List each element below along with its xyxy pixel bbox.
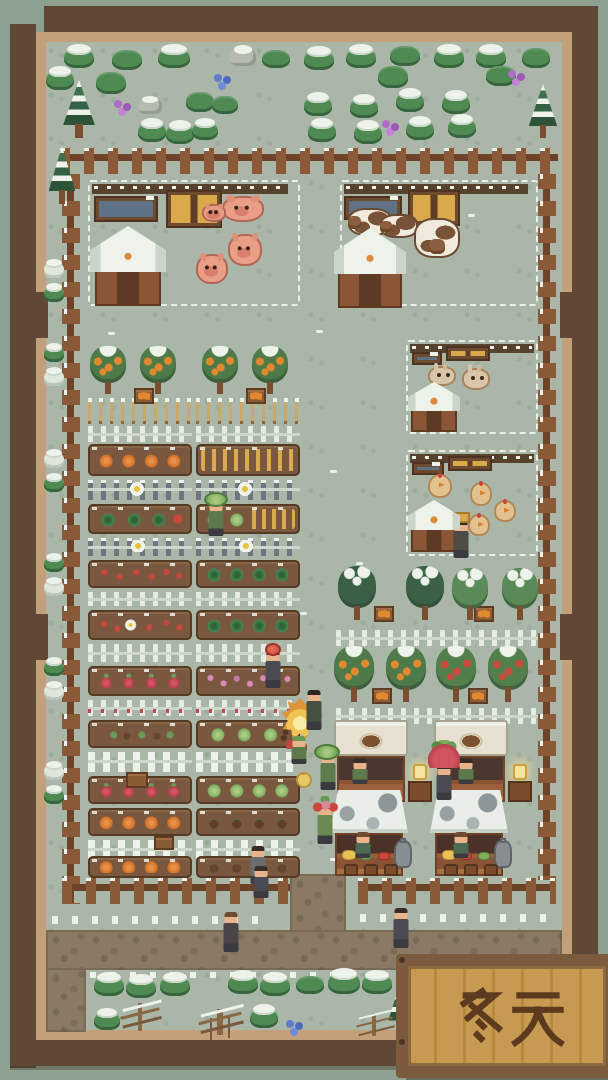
purpleflower [380, 118, 402, 134]
bush [158, 48, 190, 68]
snowdot [316, 330, 323, 333]
fooditem [478, 852, 490, 860]
scene-layer [0, 0, 608, 1080]
cow-barn[interactable] [334, 228, 406, 308]
bush [96, 72, 126, 94]
feedbox[interactable] [448, 456, 492, 471]
crate[interactable] [246, 388, 266, 404]
bush [250, 1008, 278, 1028]
chick[interactable] [296, 772, 312, 788]
bed[interactable] [88, 444, 192, 476]
bush [94, 976, 124, 996]
chicken[interactable] [468, 514, 490, 536]
tree-apple[interactable] [488, 646, 528, 702]
bush [44, 788, 64, 804]
crate[interactable] [154, 836, 174, 850]
tree-snow [452, 568, 488, 620]
snowdot [108, 332, 115, 335]
bush [44, 286, 64, 302]
trellis [88, 644, 192, 662]
cow[interactable] [414, 218, 460, 258]
carryitem [428, 740, 460, 768]
bush [522, 48, 550, 68]
stool [484, 864, 498, 876]
bush [354, 124, 382, 144]
bed[interactable] [88, 560, 192, 588]
bush [296, 976, 324, 994]
path-vertical [290, 874, 346, 934]
eggflower [128, 482, 146, 496]
bush [44, 684, 64, 700]
bush [406, 120, 434, 140]
tree-orange[interactable] [90, 346, 126, 394]
shopkeeper-1[interactable] [352, 758, 368, 784]
eggflower [130, 540, 146, 552]
carryitem [204, 492, 228, 507]
crate[interactable] [134, 388, 154, 404]
bush [126, 978, 156, 998]
shopkeeper-4[interactable] [452, 832, 470, 858]
rabbit[interactable] [428, 366, 456, 386]
deadbush [194, 1006, 246, 1038]
blueflower [284, 1018, 306, 1034]
bush [160, 976, 190, 996]
bush [44, 262, 64, 278]
bed[interactable] [196, 610, 300, 640]
bush [44, 764, 64, 780]
bush [448, 118, 476, 138]
snowdot [330, 470, 337, 473]
trellis [88, 592, 192, 606]
fence-left [62, 174, 80, 904]
carryitem [310, 796, 340, 814]
pig-barn[interactable] [90, 226, 166, 306]
fence-right [538, 174, 556, 880]
bush [192, 122, 218, 140]
tree-orange[interactable] [140, 346, 176, 394]
bed[interactable] [88, 610, 192, 640]
bush [228, 974, 258, 994]
tree-orange[interactable] [386, 646, 426, 702]
deadbush [116, 1000, 164, 1034]
stool [384, 864, 398, 876]
bush [94, 1012, 120, 1030]
eggflower [238, 540, 254, 552]
tree-orange[interactable] [202, 346, 238, 394]
bush [346, 48, 376, 68]
bed[interactable] [196, 776, 300, 804]
tree-orange[interactable] [252, 346, 288, 394]
pine [526, 84, 560, 138]
crate[interactable] [126, 772, 148, 788]
bush [44, 556, 64, 572]
bush [44, 476, 64, 492]
trellis [196, 752, 300, 772]
bush [212, 96, 238, 114]
bush [44, 346, 64, 362]
bush [44, 660, 64, 676]
bush [350, 98, 378, 118]
villager-path-1[interactable] [220, 912, 242, 952]
trellis [196, 592, 300, 606]
bush [434, 48, 464, 68]
crate[interactable] [374, 606, 394, 622]
bed[interactable] [196, 560, 300, 588]
pine [46, 146, 78, 204]
rabbit-coop[interactable] [408, 382, 460, 432]
bed[interactable] [196, 444, 300, 476]
pig[interactable] [202, 204, 226, 222]
chicken[interactable] [494, 500, 516, 522]
trough[interactable] [94, 196, 158, 222]
season-sign[interactable]: 冬天 [396, 954, 608, 1078]
shopkeeper-2[interactable] [458, 758, 474, 784]
bed[interactable] [196, 808, 300, 836]
bush [378, 66, 408, 88]
carryitem [314, 744, 340, 760]
trellis [88, 700, 192, 716]
chicken[interactable] [470, 482, 492, 506]
tree-orange[interactable] [334, 646, 374, 702]
bush [308, 122, 336, 142]
chicken[interactable] [428, 474, 452, 498]
purpleflower [112, 98, 136, 116]
path-left [46, 968, 86, 1032]
bush [328, 972, 360, 994]
bush [442, 94, 470, 114]
bed[interactable] [196, 666, 300, 696]
bush [166, 124, 194, 144]
shopkeeper-3[interactable] [354, 832, 372, 858]
bush [44, 580, 64, 596]
trellis [336, 630, 540, 646]
tree-snow [406, 566, 444, 620]
rabbit[interactable] [462, 368, 490, 390]
pine [60, 80, 98, 138]
bed[interactable] [88, 720, 192, 748]
bush [396, 92, 424, 112]
villager-kid[interactable] [290, 736, 308, 764]
snowdot [356, 562, 363, 565]
fooditem [378, 852, 390, 860]
pig[interactable] [196, 254, 228, 284]
bed[interactable] [88, 666, 192, 696]
purpleflower [506, 68, 528, 84]
bush [262, 50, 290, 68]
bed[interactable] [88, 808, 192, 836]
pig[interactable] [228, 234, 262, 266]
rock [138, 98, 162, 114]
deadbush [352, 1012, 396, 1038]
bush [112, 50, 142, 70]
pig[interactable] [222, 196, 264, 222]
stool [344, 864, 358, 876]
bush [44, 452, 64, 468]
bush [260, 976, 290, 996]
tree-apple[interactable] [436, 646, 476, 702]
tree-snow [338, 566, 376, 620]
snowline [360, 914, 550, 922]
villager-bonfire[interactable] [304, 690, 324, 730]
trellis [88, 426, 192, 442]
stool [364, 864, 378, 876]
fence-bottom-right [358, 878, 556, 904]
bush [44, 370, 64, 386]
lanterntable[interactable] [508, 764, 532, 802]
villager-path-2[interactable] [390, 908, 412, 948]
feedbox[interactable] [446, 346, 490, 361]
carryitem [265, 643, 281, 656]
season-glyphs [432, 983, 582, 1049]
rock [230, 48, 256, 66]
snowdot [300, 612, 307, 615]
fence-top [60, 148, 558, 174]
cow[interactable] [380, 214, 418, 238]
bush [138, 122, 166, 142]
bush [390, 46, 420, 66]
lanterntable[interactable] [408, 764, 432, 802]
stool [464, 864, 478, 876]
villager-gate[interactable] [252, 866, 270, 898]
game-viewport: 冬天 [0, 0, 608, 1080]
trellis [196, 644, 300, 662]
stool [444, 864, 458, 876]
eggflower [236, 482, 254, 496]
villager-radish[interactable] [434, 764, 454, 800]
bush [476, 48, 506, 68]
bed[interactable] [196, 720, 300, 748]
trellis [196, 426, 300, 442]
trellis [88, 752, 192, 772]
blueflower [212, 72, 232, 88]
bush [304, 50, 334, 70]
bush [186, 92, 214, 112]
bush [304, 96, 332, 116]
tree-snow [502, 568, 538, 620]
bed[interactable] [88, 504, 192, 534]
bush [64, 48, 94, 68]
bed[interactable] [88, 856, 192, 878]
